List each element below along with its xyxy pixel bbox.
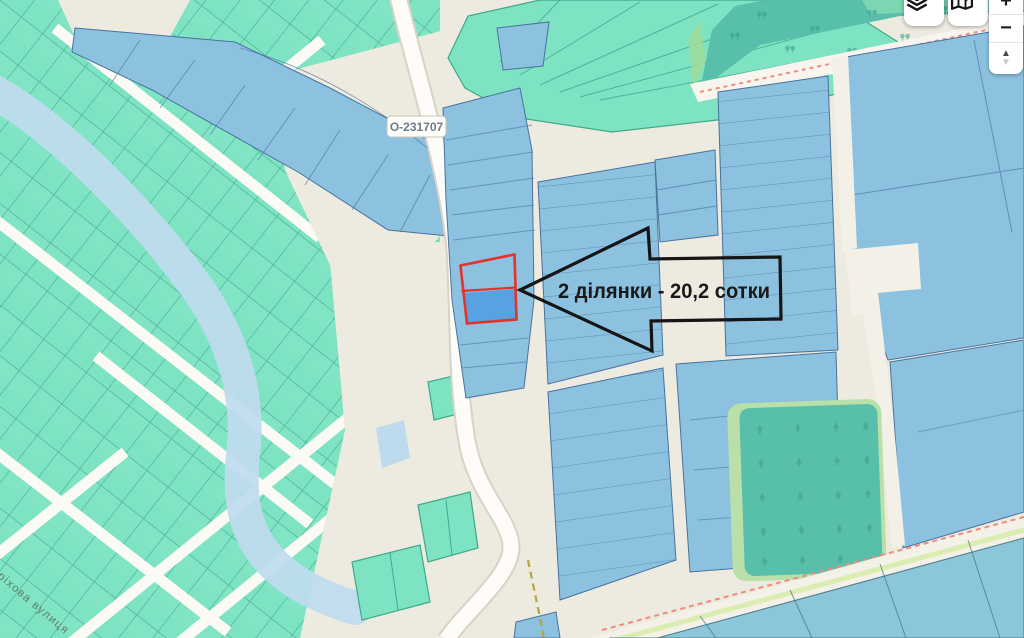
layers-button[interactable]: [904, 0, 944, 26]
zoom-out-button[interactable]: −: [989, 15, 1023, 41]
map-canvas[interactable]: 2 ділянки - 20,2 сотки О-231707 Горіхова…: [0, 0, 1024, 638]
zoom-control: + − ▲ ▼: [989, 0, 1023, 74]
road-ref-badge: О-231707: [387, 116, 446, 137]
zoom-in-button[interactable]: +: [989, 0, 1023, 14]
road-ref-label: О-231707: [390, 120, 444, 134]
map-screen: 2 ділянки - 20,2 сотки О-231707 Горіхова…: [0, 0, 1024, 638]
forest-bottom-right: [727, 398, 887, 581]
tilt-control[interactable]: ▲ ▼: [989, 43, 1023, 75]
red-parcel-highlight[interactable]: [461, 254, 517, 324]
map-location-icon: [948, 0, 976, 14]
arrow-label: 2 ділянки - 20,2 сотки: [558, 280, 770, 303]
layers-icon: [904, 0, 930, 12]
locate-button[interactable]: [948, 0, 988, 26]
tilt-down-icon[interactable]: ▼: [1001, 58, 1011, 67]
